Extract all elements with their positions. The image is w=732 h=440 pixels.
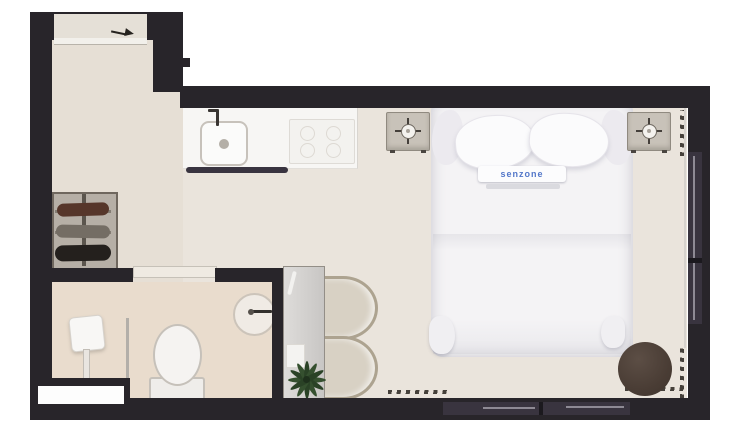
entry-arrow-icon	[124, 28, 134, 38]
bathroom-door-opening	[133, 266, 217, 278]
bed-brand-label: senzone	[478, 166, 566, 182]
counter-front-edge	[186, 167, 288, 173]
window-divider	[539, 402, 543, 415]
nightstand-right	[627, 112, 671, 151]
drain-icon	[219, 139, 229, 149]
shower-glass-partition	[126, 318, 129, 384]
window-bottom-left	[443, 402, 539, 415]
shower-head-icon	[68, 314, 105, 352]
hanging-clothes	[55, 245, 111, 262]
burner-icon	[326, 143, 341, 158]
door-stop	[183, 58, 190, 67]
hanging-clothes	[56, 225, 110, 239]
burner-icon	[326, 126, 341, 141]
bed-brand-text: senzone	[500, 169, 543, 179]
wall-left	[30, 12, 52, 420]
washbasin	[233, 293, 276, 336]
wall-bathroom-top-right	[215, 268, 283, 282]
wall-bathroom-right	[272, 282, 283, 398]
bathroom-window	[38, 386, 124, 404]
sink-faucet-icon	[216, 110, 219, 126]
wall-trim	[684, 108, 686, 348]
duvet-fold	[433, 234, 631, 250]
nightstand-left	[386, 112, 430, 151]
sink-faucet-icon	[208, 109, 219, 112]
pouf	[618, 342, 672, 396]
basin-faucet-icon	[252, 310, 272, 313]
hanging-clothes	[57, 202, 109, 217]
curtain-marks	[680, 110, 684, 156]
bed-foot-drape	[601, 316, 625, 348]
bed-foot-drape	[429, 316, 455, 354]
floor-plan-canvas: senzone	[0, 0, 732, 440]
wardrobe	[52, 192, 118, 272]
kitchen-sink	[200, 121, 248, 166]
toilet	[153, 324, 202, 386]
entry-threshold	[54, 38, 147, 45]
cooktop	[289, 119, 355, 164]
window-right	[688, 152, 702, 324]
burner-icon	[300, 126, 315, 141]
plant-icon	[287, 360, 327, 400]
bed-label-subline	[486, 184, 560, 189]
wall-entry-connector	[153, 12, 183, 92]
window-bottom-right	[542, 402, 630, 415]
wall-bathroom-top-left	[52, 268, 133, 282]
curtain-marks	[680, 348, 684, 398]
shower-pipe	[83, 349, 90, 379]
curtain-marks	[388, 390, 448, 394]
basin-knob	[248, 309, 254, 315]
burner-icon	[300, 143, 315, 158]
wall-top	[180, 86, 710, 108]
